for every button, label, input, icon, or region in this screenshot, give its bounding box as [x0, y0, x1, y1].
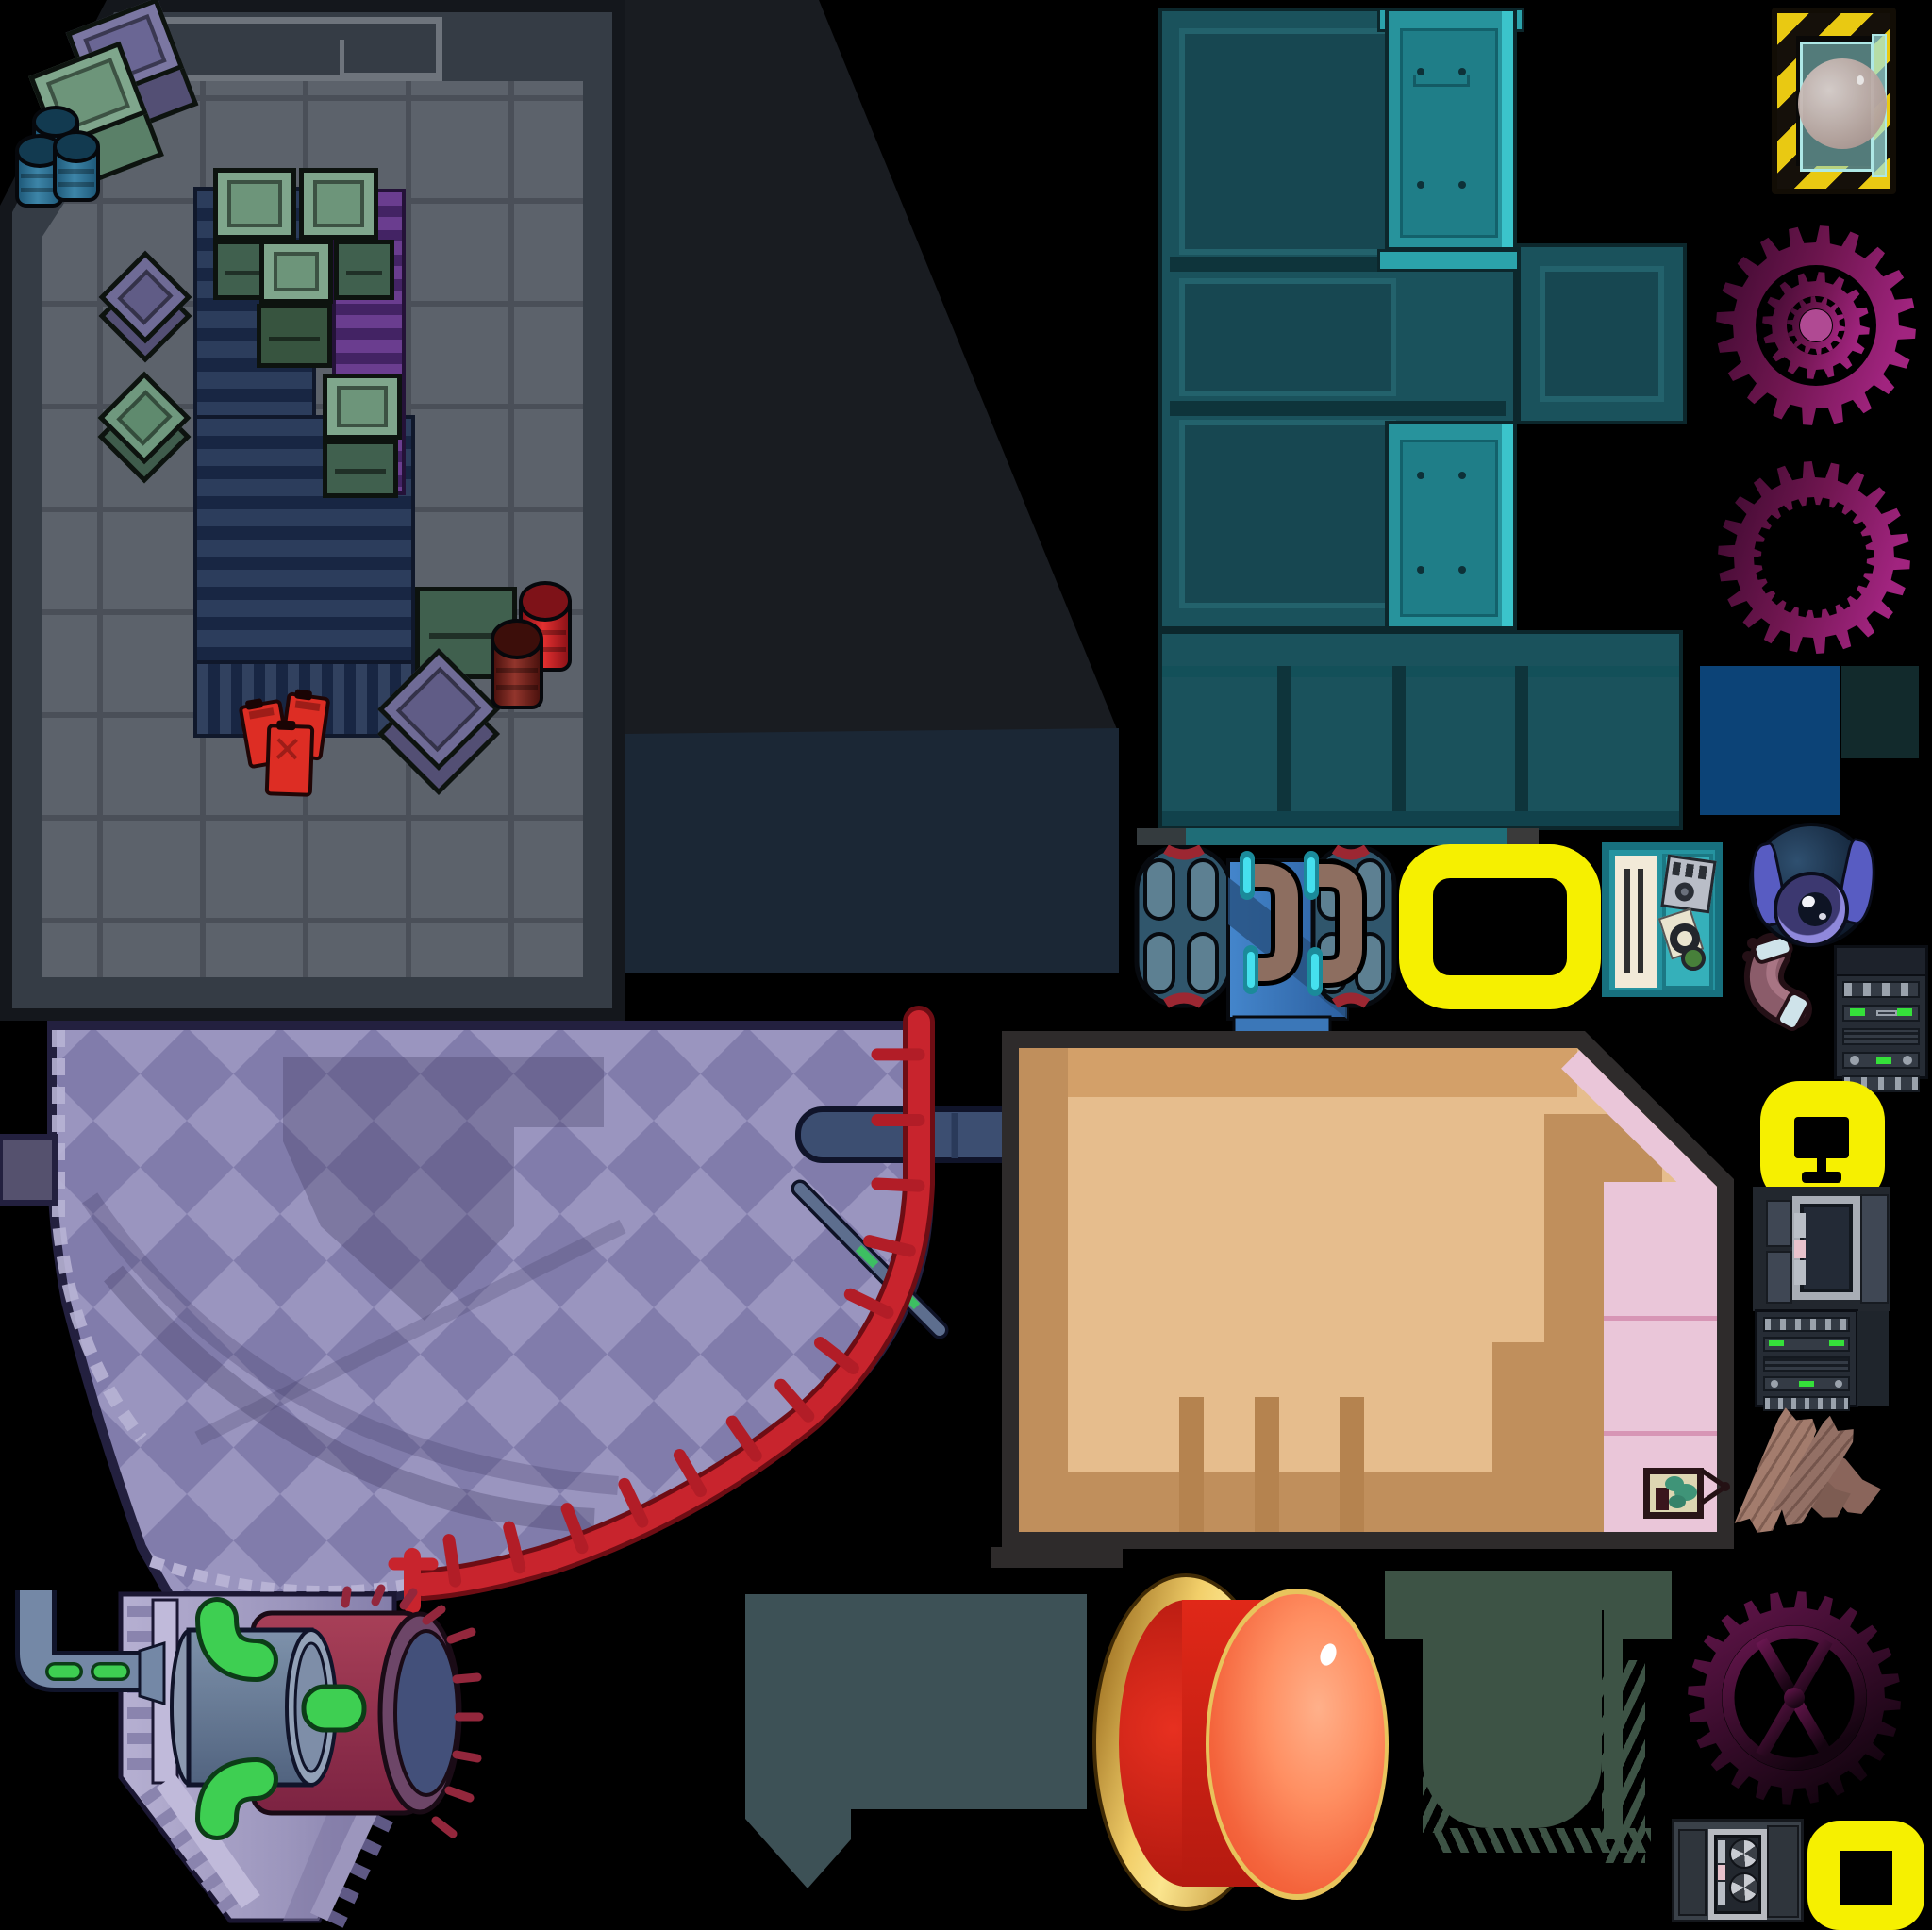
- crate-green-open: [259, 240, 333, 304]
- dome-glint: [1317, 1641, 1339, 1668]
- floor-bar: [1255, 1397, 1279, 1532]
- misc-gray-block: [1137, 828, 1186, 845]
- crate-green-open: [323, 374, 402, 440]
- camera-lens: [1774, 872, 1849, 947]
- ladder-rung: [449, 1540, 456, 1581]
- floor-shade: [1019, 1048, 1577, 1097]
- yellow-square-highlight: [1807, 1821, 1924, 1930]
- floor-shade-step: [1492, 1342, 1549, 1532]
- dome-button: [1798, 58, 1887, 149]
- crate-green-open: [213, 168, 296, 240]
- storage-room: [0, 0, 625, 1021]
- barrel-blue: [15, 134, 57, 200]
- headphone-pad: [1681, 946, 1706, 971]
- purple-checker-room: [0, 1022, 1026, 1606]
- teal-panel: [1179, 420, 1396, 608]
- crate-green-open: [299, 168, 378, 240]
- pointer-arrow: [1696, 1463, 1734, 1512]
- teal-panel: [1179, 278, 1396, 396]
- floor-bar: [1179, 1397, 1204, 1532]
- fan-unit: [1672, 1819, 1804, 1922]
- floor-bar: [1340, 1397, 1364, 1532]
- monitor-frame: [1792, 1196, 1860, 1300]
- yellow-frame-highlight: [1399, 844, 1601, 1009]
- monitor-icon: [1794, 1117, 1849, 1158]
- glass-dome: [1209, 1594, 1385, 1894]
- crate-dark-closed: [334, 240, 394, 300]
- teal-cabinet-structure: [1158, 8, 1687, 832]
- workbench-desk: [1602, 842, 1723, 997]
- audio-rack-right: [1834, 945, 1928, 1079]
- computer-terminal: [1753, 1187, 1890, 1311]
- boiler-pipes: [1137, 847, 1394, 1036]
- emergency-button[interactable]: [1092, 1570, 1385, 1915]
- plant-pot: [1656, 1488, 1669, 1510]
- instrument-box: [1660, 855, 1716, 914]
- tan-floor: [1002, 1031, 1734, 1549]
- barrel-maroon: [491, 619, 536, 702]
- jerry-can: [265, 724, 315, 797]
- barrel-blue: [53, 130, 92, 194]
- pit-bracket-green: [1385, 1571, 1674, 1863]
- screen: [1800, 1204, 1853, 1292]
- crate-green-diamond: [97, 377, 192, 483]
- crate-purple-diamond: [377, 658, 500, 798]
- square-cutout: [1840, 1851, 1892, 1905]
- audio-rack-lower: [1755, 1309, 1858, 1407]
- teal-door[interactable]: [1385, 421, 1517, 630]
- maroon-elbow-pipe: [1742, 935, 1810, 1031]
- tan-room-border-stub: [991, 1547, 1123, 1568]
- wall-panel-notch: [340, 40, 438, 77]
- engine-assembly: [36, 1589, 479, 1924]
- crate-dark-closed: [323, 440, 398, 498]
- crate-dark-closed: [257, 304, 332, 368]
- teal-wing: [1517, 243, 1687, 424]
- dark-square-swatch: [1841, 666, 1919, 758]
- fan-blade-icon: [1729, 1872, 1759, 1903]
- plant-picture: [1643, 1468, 1704, 1519]
- hazard-glass-button[interactable]: [1772, 8, 1896, 194]
- rack-side-panel: [1857, 1311, 1889, 1406]
- teal-groove: [1170, 401, 1506, 416]
- crate-purple-diamond: [98, 257, 192, 362]
- fan-frame: [1708, 1829, 1767, 1920]
- misc-teal-strip: [1186, 828, 1507, 845]
- fan-blade-icon: [1729, 1838, 1759, 1869]
- tan-room: [1002, 1031, 1734, 1549]
- security-camera-orb: [1749, 823, 1874, 947]
- blue-square-swatch: [1700, 666, 1840, 815]
- shadow-wedge: [625, 0, 1119, 973]
- engine-rim-face: [395, 1631, 458, 1795]
- floor-shade: [1019, 1048, 1068, 1532]
- wall-tab-gray: [0, 1137, 55, 1203]
- speech-arrow-slab: [745, 1594, 1087, 1888]
- teal-panel: [1179, 28, 1396, 255]
- teal-door-cap: [1377, 249, 1524, 272]
- paper-strip: [1615, 856, 1657, 988]
- wood-plank-pile: [1745, 1406, 1896, 1556]
- gear-ring-hollow: [1718, 461, 1910, 654]
- ladder-rung: [877, 1184, 919, 1186]
- green-axle-nub: [304, 1687, 364, 1730]
- sprite-atlas-canvas: [0, 0, 1932, 1930]
- teal-base: [1158, 630, 1683, 830]
- teal-door[interactable]: [1385, 8, 1517, 251]
